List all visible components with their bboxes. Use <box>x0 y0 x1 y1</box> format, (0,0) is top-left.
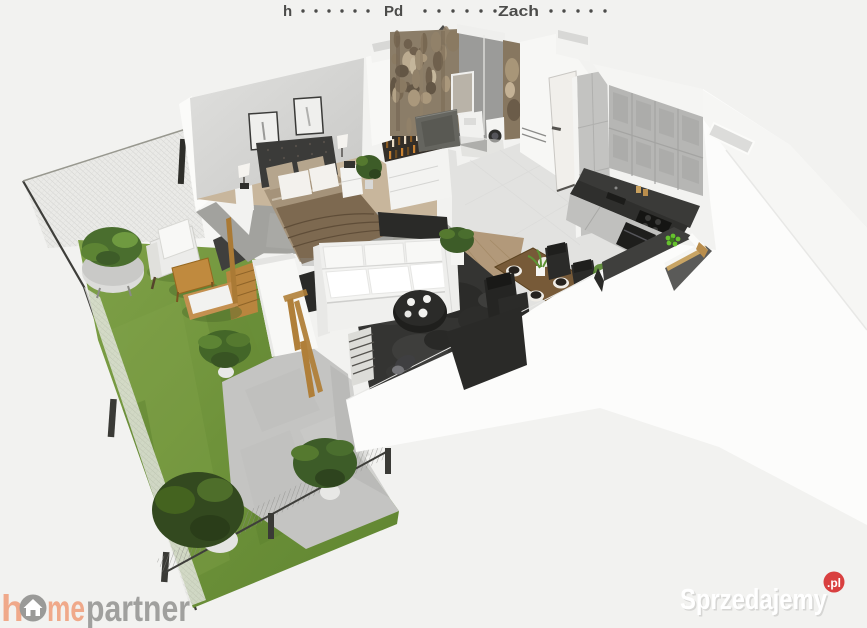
svg-text:me: me <box>47 588 85 628</box>
svg-text:Pd: Pd <box>384 3 403 20</box>
svg-text:partner: partner <box>86 588 190 628</box>
svg-text:h: h <box>283 3 292 20</box>
svg-text:Sprzedajemy: Sprzedajemy <box>680 584 827 616</box>
svg-text:.pl: .pl <box>827 576 841 590</box>
svg-text:Zach: Zach <box>498 3 539 20</box>
